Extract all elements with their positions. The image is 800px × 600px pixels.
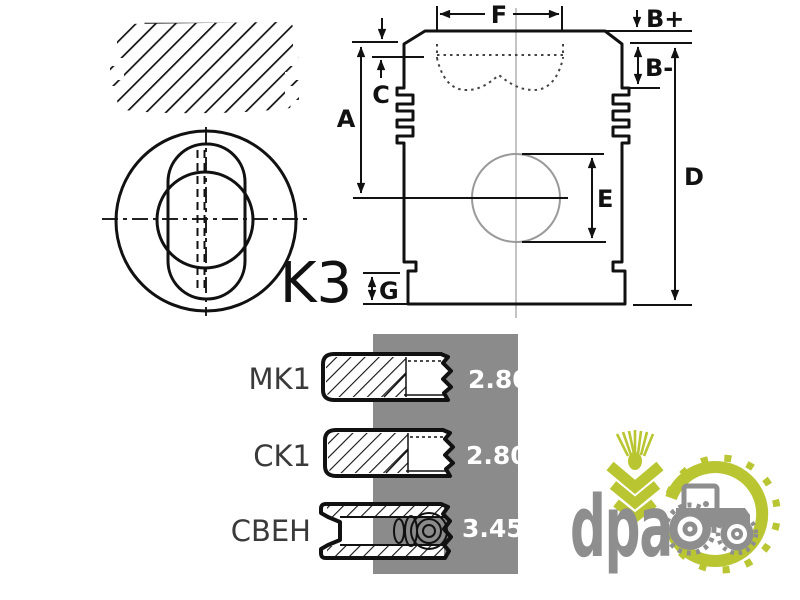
ring-label: CK1 xyxy=(253,439,311,473)
compression-ring-profile xyxy=(325,430,453,476)
dimension-lines: F B+ B- C A D E xyxy=(337,1,704,305)
ring-spec-panel: MK1 2.80 CK1 2.80 CBEH xyxy=(231,334,530,574)
dim-label-e: E xyxy=(597,185,613,213)
ring-label: MK1 xyxy=(249,362,312,396)
ring-value: 3.45 xyxy=(462,514,524,543)
dim-label-g: G xyxy=(379,277,399,305)
ring-value: 2.80 xyxy=(466,441,528,470)
dim-label-b-minus: B- xyxy=(645,54,673,82)
compression-ring-profile xyxy=(323,354,451,400)
crown-section-view xyxy=(110,22,299,113)
piston-outline xyxy=(397,31,629,304)
dim-label-f: F xyxy=(491,1,507,29)
part-code-label: K3 xyxy=(280,251,352,316)
logo-text: dpa xyxy=(570,478,672,577)
dim-label-d: D xyxy=(684,163,704,191)
ring-label: CBEH xyxy=(231,514,311,548)
piston-side-view: F B+ B- C A D E xyxy=(337,1,704,318)
dpa-logo: dpa xyxy=(570,430,777,577)
dim-label-a: A xyxy=(337,105,356,133)
dim-label-b-plus: B+ xyxy=(646,5,684,33)
dim-label-c: C xyxy=(372,81,390,109)
piston-diagram: K3 F B+ B- xyxy=(0,0,800,600)
hidden-bowl-outline xyxy=(437,44,563,90)
diagram-canvas: K3 F B+ B- xyxy=(0,0,800,600)
ring-value: 2.80 xyxy=(468,365,530,394)
tractor-icon xyxy=(666,486,756,553)
